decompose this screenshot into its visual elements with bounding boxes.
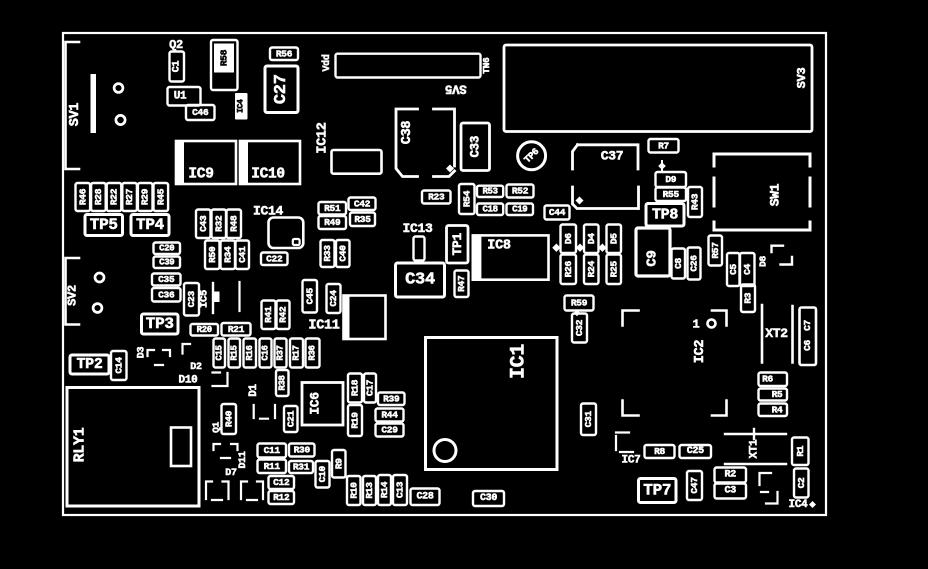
svg-text:SV2: SV2 — [66, 285, 80, 306]
svg-text:R41: R41 — [263, 306, 274, 323]
svg-text:D9: D9 — [665, 174, 676, 185]
svg-text:IC9: IC9 — [188, 167, 213, 183]
svg-text:R45: R45 — [155, 188, 166, 205]
svg-text:R5: R5 — [772, 389, 783, 400]
svg-text:R4: R4 — [772, 404, 783, 415]
svg-text:C11: C11 — [264, 445, 281, 456]
svg-text:IC6: IC6 — [308, 392, 323, 415]
svg-text:C26: C26 — [689, 255, 700, 272]
svg-text:R28: R28 — [93, 188, 104, 205]
svg-text:IC2: IC2 — [693, 340, 708, 364]
svg-text:IC13: IC13 — [402, 221, 433, 236]
svg-text:IC5: IC5 — [199, 290, 211, 308]
svg-text:R52: R52 — [512, 186, 529, 197]
svg-text:C18: C18 — [482, 204, 497, 214]
svg-text:IC12: IC12 — [316, 122, 331, 153]
svg-text:R2: R2 — [725, 470, 737, 481]
svg-text:C8: C8 — [673, 258, 684, 269]
svg-text:R48: R48 — [228, 215, 239, 232]
svg-text:R49: R49 — [324, 217, 341, 228]
svg-text:R31: R31 — [293, 462, 310, 473]
svg-text:C32: C32 — [574, 319, 585, 336]
svg-text:C23: C23 — [186, 291, 197, 308]
svg-text:C10: C10 — [317, 466, 328, 483]
svg-text:C43: C43 — [198, 215, 209, 232]
svg-text:R47: R47 — [456, 275, 467, 292]
svg-text:XT2: XT2 — [765, 326, 788, 341]
svg-text:R1: R1 — [795, 445, 806, 456]
svg-text:TP2: TP2 — [76, 356, 102, 373]
svg-text:R11: R11 — [264, 461, 281, 472]
svg-text:R7: R7 — [658, 140, 669, 151]
svg-text:SV3: SV3 — [795, 68, 809, 89]
svg-text:R10: R10 — [348, 482, 359, 499]
svg-text:C38: C38 — [400, 121, 415, 145]
svg-text:R55: R55 — [663, 189, 680, 200]
svg-text:C28: C28 — [416, 491, 433, 502]
svg-text:R21: R21 — [228, 324, 245, 335]
svg-text:TP5: TP5 — [90, 216, 118, 234]
svg-text:R16: R16 — [245, 345, 255, 360]
svg-text:XT1: XT1 — [749, 439, 761, 459]
svg-text:D1: D1 — [248, 384, 260, 397]
svg-text:IC4: IC4 — [789, 499, 809, 511]
svg-text:C22: C22 — [266, 253, 283, 264]
svg-text:D7: D7 — [225, 468, 237, 479]
svg-text:C1: C1 — [171, 61, 182, 73]
svg-text:R29: R29 — [140, 188, 151, 205]
svg-text:R15: R15 — [229, 345, 239, 360]
svg-text:TP8: TP8 — [652, 206, 678, 223]
svg-text:D10: D10 — [179, 375, 198, 387]
svg-text:C36: C36 — [158, 289, 175, 300]
svg-text:IC4: IC4 — [237, 99, 246, 113]
svg-text:C25: C25 — [687, 446, 704, 457]
svg-text:R12: R12 — [273, 492, 290, 503]
svg-text:R56: R56 — [276, 48, 293, 59]
svg-text:C13: C13 — [395, 481, 406, 498]
svg-text:R17: R17 — [292, 345, 302, 360]
svg-text:R20: R20 — [197, 325, 212, 335]
svg-text:C17: C17 — [365, 379, 376, 396]
svg-text:R25: R25 — [608, 261, 619, 278]
svg-text:IC8: IC8 — [487, 239, 511, 254]
svg-text:C19: C19 — [512, 204, 527, 214]
svg-text:RLY1: RLY1 — [72, 427, 89, 462]
svg-text:R42: R42 — [278, 306, 289, 323]
svg-text:C44: C44 — [549, 207, 566, 218]
svg-text:R9: R9 — [333, 458, 344, 469]
svg-text:C27: C27 — [272, 74, 291, 104]
svg-text:C39: C39 — [159, 257, 174, 267]
svg-text:R13: R13 — [364, 482, 375, 499]
svg-text:C46: C46 — [192, 107, 209, 118]
svg-text:R59: R59 — [571, 298, 588, 309]
svg-text:TP7: TP7 — [643, 482, 671, 500]
svg-text:R14: R14 — [379, 481, 390, 498]
svg-text:C40: C40 — [337, 245, 348, 262]
svg-text:SW1: SW1 — [768, 183, 783, 206]
svg-text:C37: C37 — [601, 149, 624, 164]
svg-text:R36: R36 — [308, 345, 318, 360]
svg-text:R22: R22 — [109, 188, 120, 205]
svg-text:C4: C4 — [742, 264, 753, 275]
svg-text:R54: R54 — [461, 190, 472, 207]
svg-text:IC1: IC1 — [508, 344, 531, 379]
svg-text:R39: R39 — [383, 393, 400, 404]
svg-text:IC10: IC10 — [251, 167, 285, 183]
svg-text:R46: R46 — [77, 188, 88, 205]
svg-text:R57: R57 — [710, 242, 721, 259]
svg-text:R23: R23 — [428, 192, 445, 203]
svg-text:R34: R34 — [222, 246, 233, 263]
svg-text:SV5: SV5 — [445, 82, 467, 96]
svg-text:C6: C6 — [802, 340, 813, 351]
svg-text:C20: C20 — [159, 243, 174, 253]
svg-text:R8: R8 — [654, 446, 665, 457]
svg-text:C47: C47 — [689, 477, 700, 494]
svg-text:IC11: IC11 — [308, 319, 339, 334]
svg-text:R32: R32 — [213, 215, 224, 232]
svg-text:C30: C30 — [480, 493, 497, 504]
svg-text:D5: D5 — [608, 233, 619, 244]
svg-text:R33: R33 — [322, 245, 333, 262]
svg-text:C14: C14 — [113, 357, 124, 374]
svg-text:R58: R58 — [219, 49, 230, 66]
svg-text:C16: C16 — [261, 345, 271, 360]
svg-text:U1: U1 — [174, 91, 187, 103]
svg-text:TN6: TN6 — [481, 57, 492, 74]
svg-text:C5: C5 — [728, 264, 739, 275]
svg-text:C12: C12 — [273, 477, 290, 488]
svg-text:R38: R38 — [277, 375, 287, 390]
svg-text:IC7: IC7 — [622, 455, 641, 467]
svg-text:Vdd: Vdd — [321, 54, 333, 71]
svg-text:TP3: TP3 — [146, 315, 174, 333]
svg-text:R35: R35 — [354, 214, 371, 225]
svg-text:C29: C29 — [381, 425, 398, 436]
svg-text:C33: C33 — [468, 136, 482, 158]
svg-text:R3: R3 — [743, 292, 754, 303]
svg-text:C35: C35 — [158, 274, 175, 285]
svg-text:C15: C15 — [214, 345, 224, 360]
svg-text:C3: C3 — [725, 486, 737, 497]
svg-text:R50: R50 — [207, 246, 218, 263]
svg-text:R40: R40 — [223, 410, 234, 427]
svg-text:D2: D2 — [190, 362, 202, 373]
svg-text:C31: C31 — [583, 411, 594, 428]
svg-text:C41: C41 — [237, 246, 248, 263]
svg-text:C21: C21 — [285, 410, 296, 427]
svg-text:R30: R30 — [294, 445, 311, 456]
svg-text:D11: D11 — [238, 451, 249, 468]
svg-text:TP4: TP4 — [136, 216, 165, 234]
svg-text:R19: R19 — [350, 412, 361, 429]
svg-text:C24: C24 — [328, 290, 339, 307]
svg-text:C2: C2 — [796, 477, 807, 488]
svg-text:R27: R27 — [124, 188, 135, 205]
svg-text:Q1: Q1 — [211, 422, 222, 433]
svg-text:R37: R37 — [276, 345, 286, 360]
svg-text:TP1: TP1 — [450, 233, 465, 256]
svg-text:C34: C34 — [405, 271, 435, 290]
svg-text:SV1: SV1 — [68, 103, 83, 127]
svg-text:R43: R43 — [690, 193, 701, 210]
svg-text:D3: D3 — [136, 347, 147, 359]
svg-text:R26: R26 — [563, 261, 574, 278]
svg-text:D6: D6 — [563, 233, 574, 244]
svg-text:R51: R51 — [324, 203, 341, 214]
svg-text:C9: C9 — [645, 250, 661, 266]
svg-text:C7: C7 — [802, 320, 813, 331]
svg-text:R24: R24 — [586, 261, 597, 278]
svg-text:Q2: Q2 — [169, 38, 183, 52]
svg-text:R18: R18 — [350, 379, 361, 396]
svg-text:R53: R53 — [482, 186, 497, 196]
svg-text:1: 1 — [693, 318, 700, 332]
svg-text:R44: R44 — [381, 410, 398, 421]
svg-text:C42: C42 — [354, 198, 371, 209]
svg-text:C45: C45 — [304, 288, 315, 305]
svg-text:D4: D4 — [586, 233, 597, 244]
svg-text:R6: R6 — [762, 374, 773, 385]
svg-text:D8: D8 — [758, 256, 769, 267]
